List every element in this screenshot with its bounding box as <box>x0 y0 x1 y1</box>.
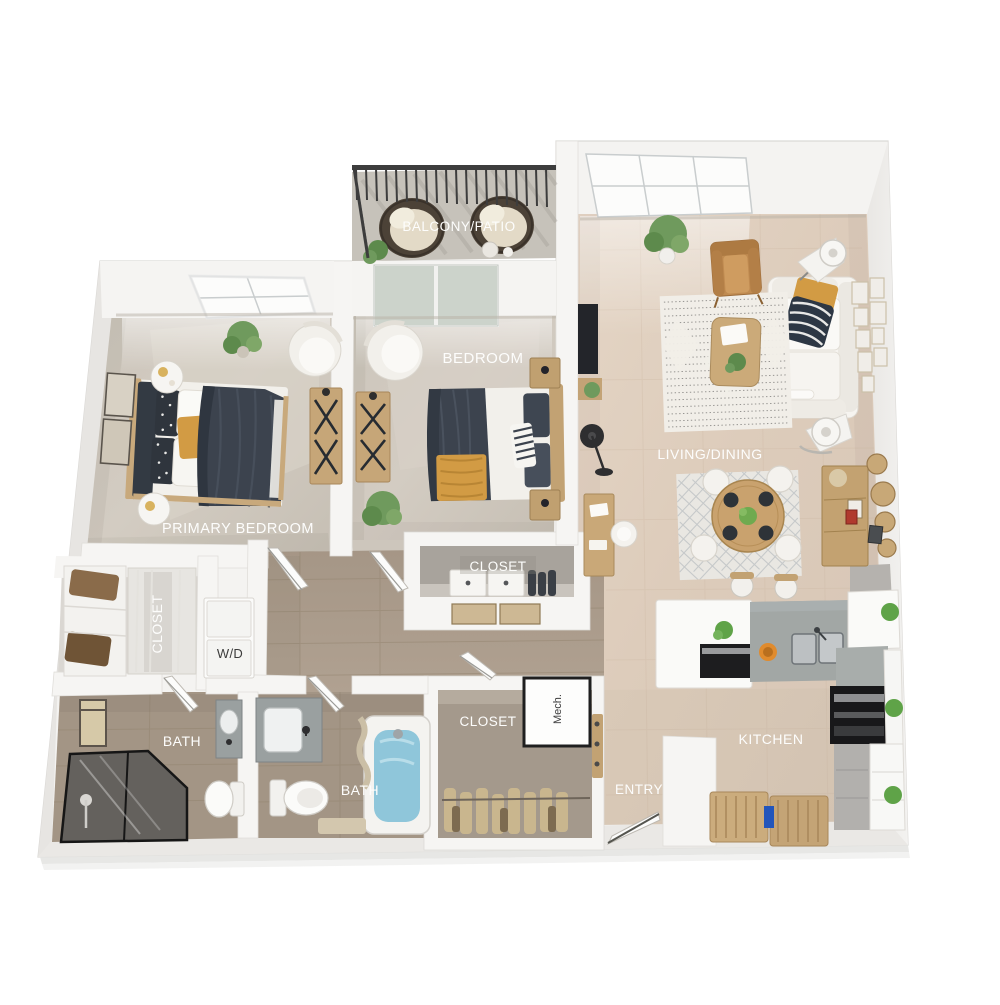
svg-text:ENTRY: ENTRY <box>615 782 663 797</box>
svg-text:BEDROOM: BEDROOM <box>442 350 523 367</box>
svg-text:PRIMARY BEDROOM: PRIMARY BEDROOM <box>162 521 314 537</box>
svg-text:KITCHEN: KITCHEN <box>739 731 804 747</box>
svg-text:CLOSET: CLOSET <box>469 559 526 574</box>
svg-text:Mech.: Mech. <box>552 694 564 724</box>
svg-text:BATH: BATH <box>163 733 201 749</box>
svg-text:LIVING/DINING: LIVING/DINING <box>657 446 762 462</box>
svg-text:BALCONY/PATIO: BALCONY/PATIO <box>402 219 515 234</box>
svg-text:CLOSET: CLOSET <box>149 594 165 653</box>
svg-text:W/D: W/D <box>217 646 243 661</box>
svg-text:BATH: BATH <box>341 782 379 798</box>
svg-text:CLOSET: CLOSET <box>459 714 516 729</box>
